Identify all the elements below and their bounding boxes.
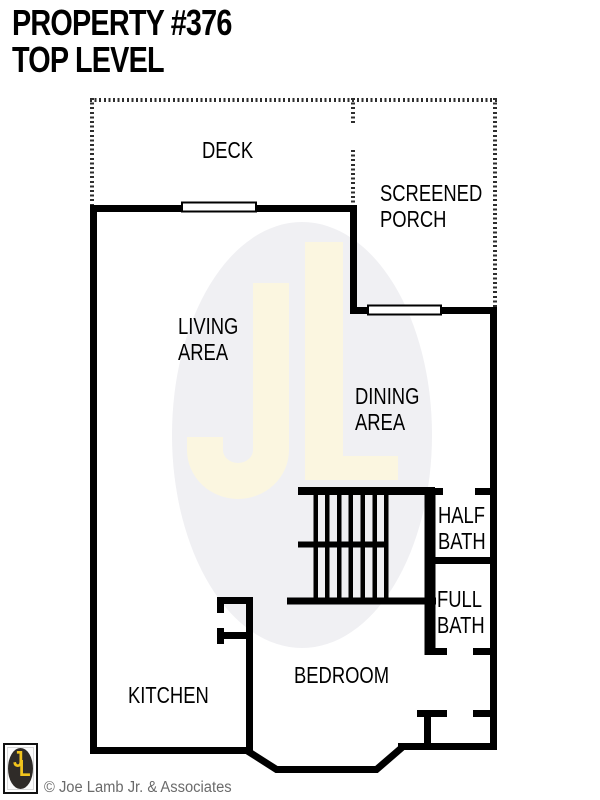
floorplan-page: PROPERTY #376 TOP LEVEL DECK SCREENED PO…: [0, 0, 600, 800]
bedroom-bay-wall: [246, 748, 402, 770]
jl-watermark-oval: [172, 222, 432, 648]
room-label-deck: DECK: [202, 137, 253, 163]
room-label-kitchen: KITCHEN: [128, 682, 209, 708]
screened-porch-line2: PORCH: [380, 206, 482, 232]
full-bath-line2: BATH: [437, 612, 485, 638]
living-area-line2: AREA: [178, 339, 238, 365]
room-label-half-bath: HALF BATH: [438, 502, 486, 554]
dining-porch-sliding-door: [368, 306, 441, 315]
living-area-line1: LIVING: [178, 313, 238, 339]
jl-watermark-letter-l-foot: [305, 456, 398, 480]
room-label-full-bath: FULL BATH: [437, 586, 485, 638]
page-title-line2: TOP LEVEL: [12, 41, 232, 78]
dining-area-line1: DINING: [355, 383, 419, 409]
joe-lamb-logo-oval: J L: [8, 748, 33, 789]
living-deck-sliding-door: [182, 203, 256, 212]
room-label-living-area: LIVING AREA: [178, 313, 238, 365]
page-title: PROPERTY #376 TOP LEVEL: [12, 4, 232, 78]
half-bath-line1: HALF: [438, 502, 486, 528]
room-label-screened-porch: SCREENED PORCH: [380, 180, 482, 232]
room-label-bedroom: BEDROOM: [294, 662, 389, 688]
jl-watermark: [172, 222, 432, 648]
copyright-text: © Joe Lamb Jr. & Associates: [44, 779, 232, 797]
joe-lamb-logo: J L: [3, 743, 38, 794]
logo-letter-l: L: [19, 757, 31, 780]
half-bath-line2: BATH: [438, 528, 486, 554]
page-title-line1: PROPERTY #376: [12, 4, 232, 41]
screened-porch-line1: SCREENED: [380, 180, 482, 206]
room-label-dining-area: DINING AREA: [355, 383, 419, 435]
bay-window-wall: [246, 748, 402, 770]
full-bath-line1: FULL: [437, 586, 485, 612]
jl-watermark-letter-l-stem: [305, 242, 343, 480]
dining-area-line2: AREA: [355, 409, 419, 435]
stair-treads: [316, 490, 387, 601]
